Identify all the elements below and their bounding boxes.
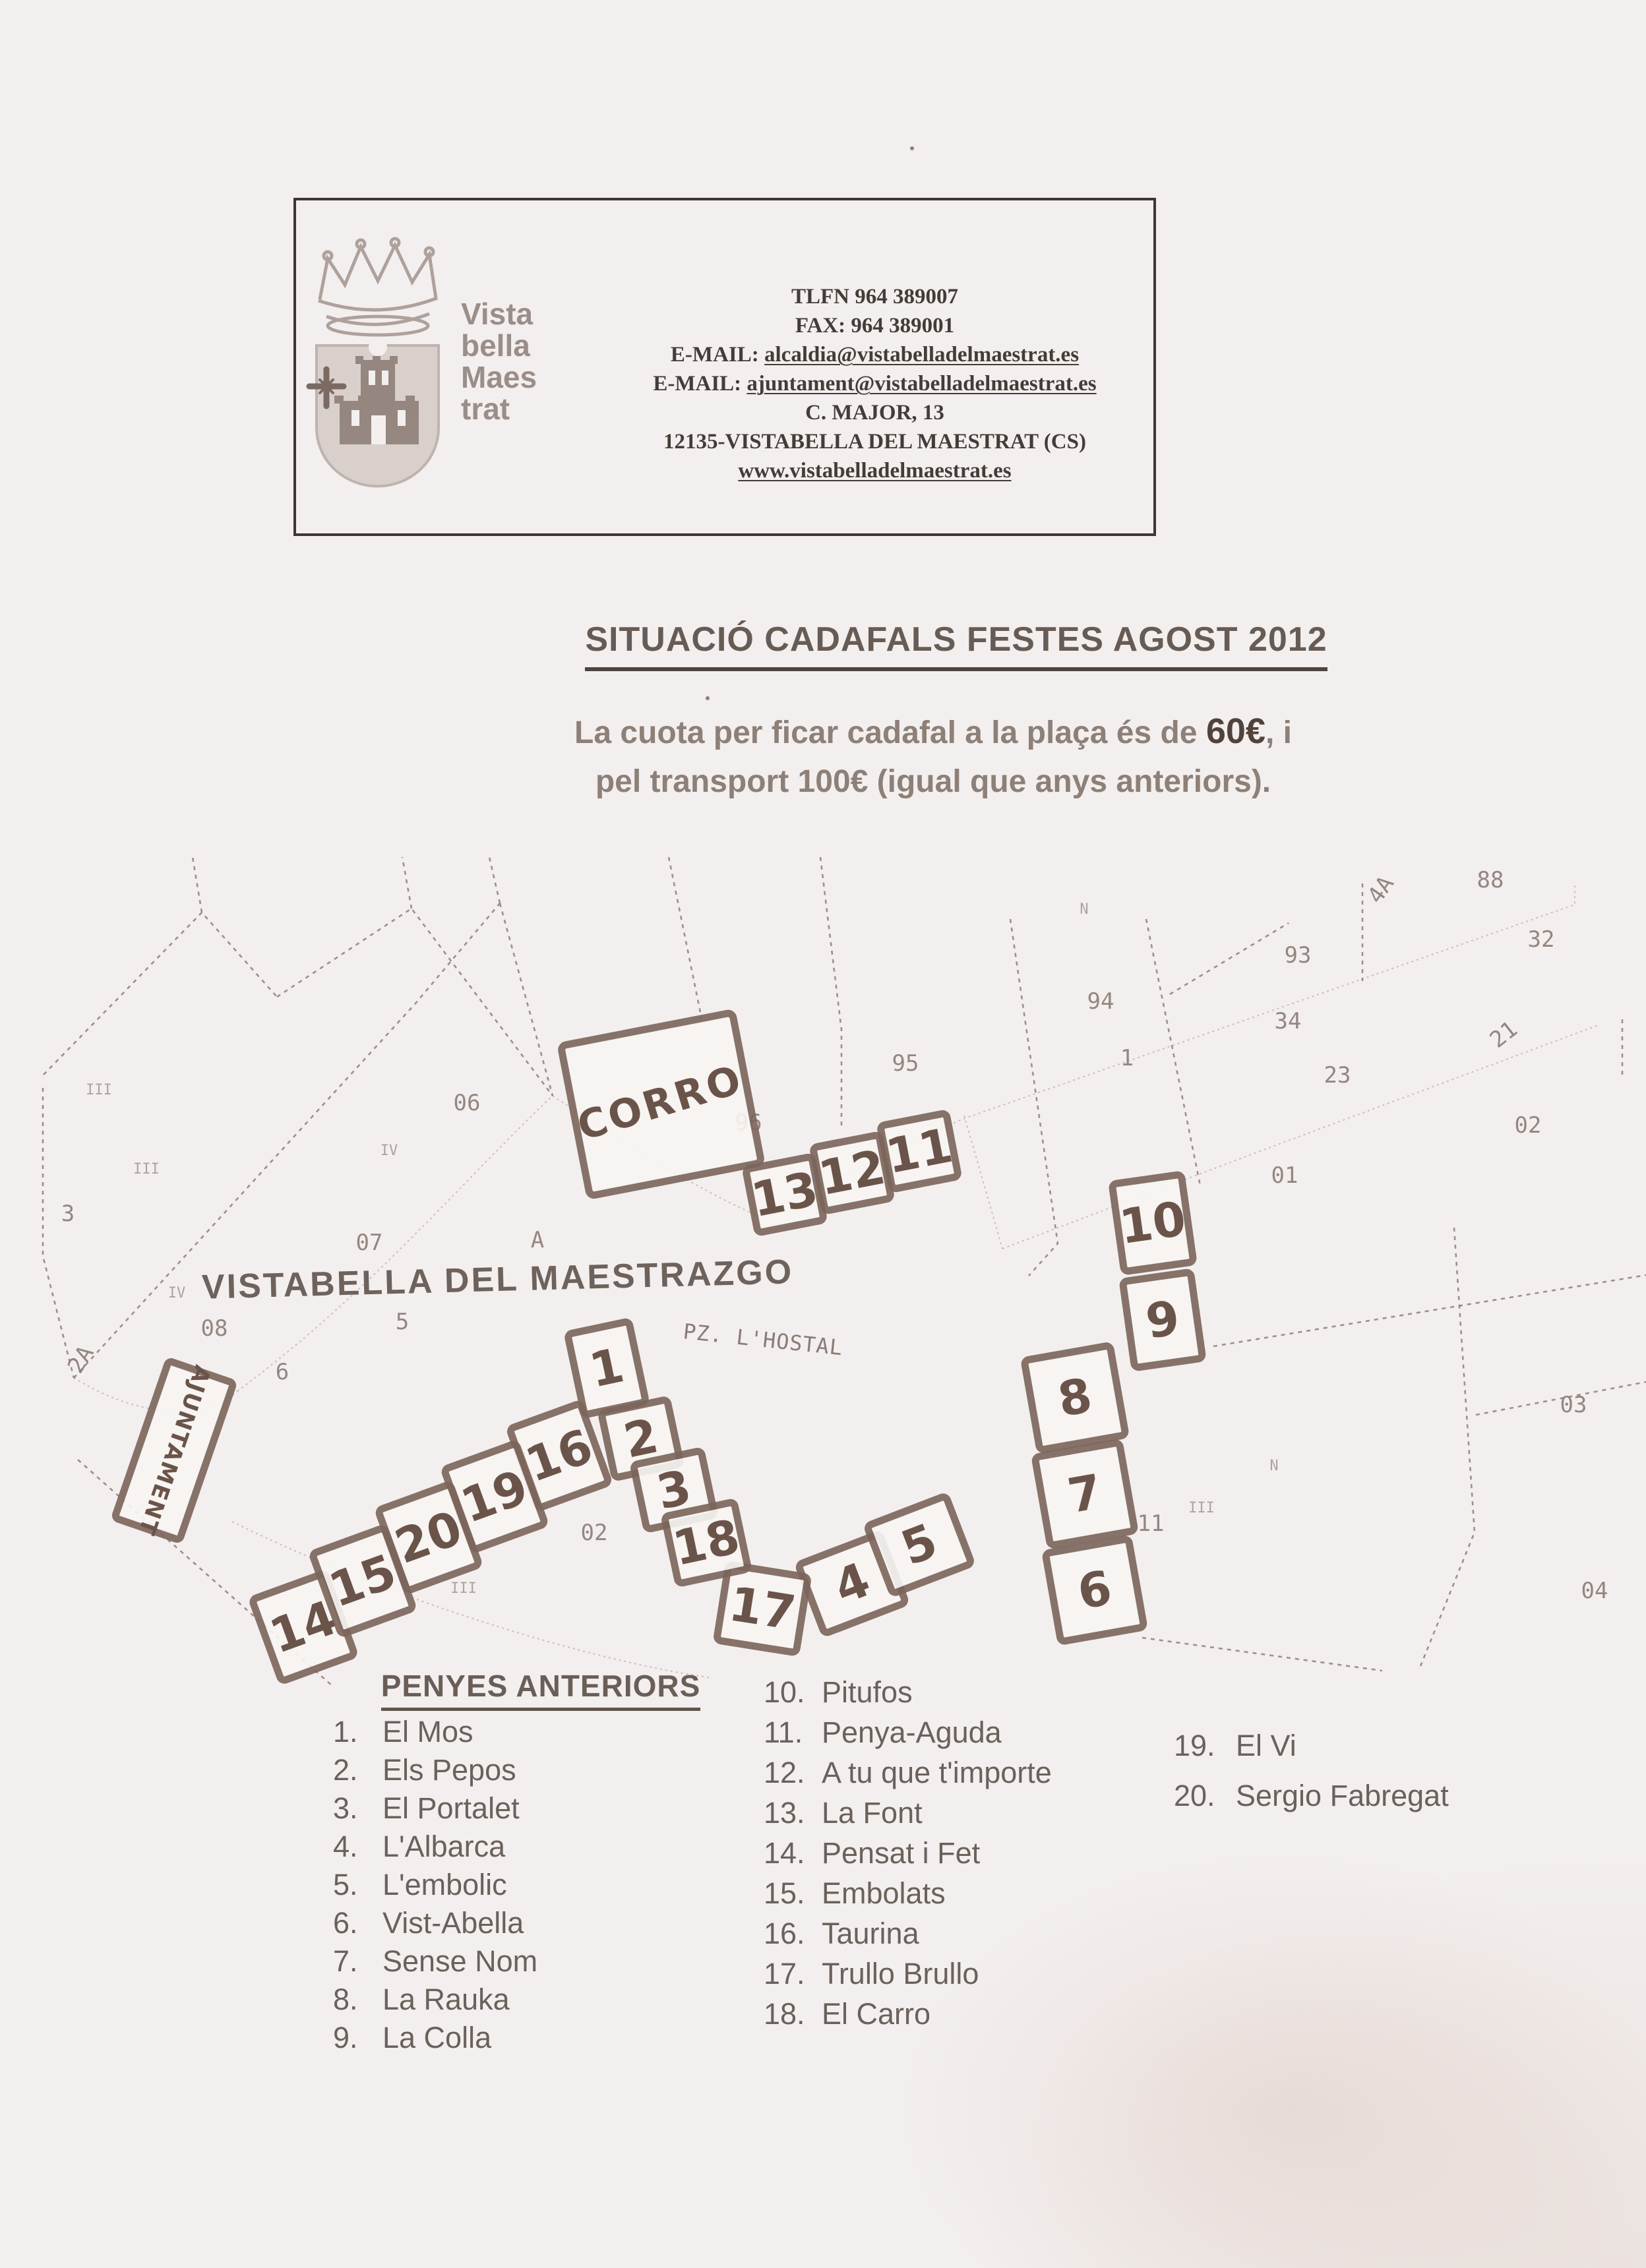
list-item-name: Embolats (822, 1876, 946, 1910)
cadastral-map-svg: 0696959493341232132884A0201030411070856A… (0, 850, 1646, 1686)
letterhead-box: Vista bella Maes trat TLFN 964 389007 FA… (293, 198, 1156, 536)
list-item: 7.Sense Nom (333, 1942, 537, 1981)
brand-line: bella (461, 330, 537, 361)
stand-number: 10 (1116, 1191, 1189, 1255)
list-item-name: Sense Nom (382, 1944, 537, 1978)
stand-box-6: 6 (1045, 1539, 1144, 1642)
list-item-number: 6. (333, 1904, 382, 1942)
penyes-header-text: PENYES ANTERIORS (381, 1668, 701, 1711)
stand-box-7: 7 (1035, 1443, 1135, 1546)
address-line: C. MAJOR, 13 (613, 398, 1137, 427)
email-label: E-MAIL: (653, 372, 741, 396)
parcel-label: 06 (454, 1090, 481, 1116)
list-item: 11.Penya-Aguda (764, 1712, 1052, 1752)
fee-amount: 60€ (1206, 711, 1265, 751)
list-item-number: 17. (764, 1954, 822, 1994)
list-item-number: 14. (764, 1833, 822, 1873)
list-item: 8.La Rauka (333, 1981, 537, 2019)
document-title-text: SITUACIÓ CADAFALS FESTES AGOST 2012 (585, 620, 1327, 671)
parcel-label: 02 (1515, 1112, 1542, 1139)
parcel-label: 88 (1477, 867, 1504, 893)
parcel-label: 94 (1087, 988, 1114, 1015)
list-item-number: 7. (333, 1942, 382, 1981)
list-item-number: 15. (764, 1873, 822, 1913)
stand-box-11: 11 (880, 1113, 959, 1189)
parcel-label: 5 (396, 1309, 409, 1335)
penyes-col-2: 10.Pitufos11.Penya-Aguda12.A tu que t'im… (764, 1672, 1052, 2034)
website-line: www.vistabelladelmaestrat.es (613, 456, 1137, 485)
fax-line: FAX: 964 389001 (613, 311, 1137, 340)
list-item-name: Taurina (822, 1917, 919, 1950)
email-address: ajuntament@vistabelladelmaestrat.es (747, 372, 1096, 396)
list-item: 18.El Carro (764, 1994, 1052, 2034)
list-item-number: 9. (333, 2019, 382, 2057)
parcel-label: 1 (1120, 1045, 1134, 1071)
parcel-label: 3 (61, 1201, 75, 1227)
map-mark: IV (381, 1143, 398, 1159)
list-item: 13.La Font (764, 1793, 1052, 1833)
list-item-number: 3. (333, 1789, 382, 1828)
list-item-name: El Carro (822, 1997, 930, 2031)
parcel-label: 4A (1362, 871, 1399, 908)
town-name-label: VISTABELLA DEL MAESTRAZGO (201, 1253, 794, 1306)
brand-line: Vista (461, 298, 537, 330)
penyes-col-3: 19.El Vi20.Sergio Fabregat (1174, 1721, 1449, 1821)
list-item: 6.Vist-Abella (333, 1904, 537, 1942)
map-mark: N (1269, 1458, 1278, 1474)
list-item-number: 4. (333, 1828, 382, 1866)
brand-line: Maes (461, 361, 537, 393)
stand-box-13: 13 (746, 1156, 824, 1233)
parcel-label: 02 (581, 1520, 608, 1546)
intro-line-1: La cuota per ficar cadafal a la plaça és… (422, 707, 1444, 758)
list-item-name: El Mos (382, 1715, 473, 1748)
list-item-name: Penya-Aguda (822, 1716, 1002, 1749)
parcel-label: 23 (1324, 1062, 1351, 1089)
list-item: 12.A tu que t'importe (764, 1752, 1052, 1793)
map-mark: III (133, 1161, 160, 1178)
penyes-col-1: 1.El Mos2.Els Pepos3.El Portalet4.L'Alba… (333, 1713, 537, 2057)
document-page: Vista bella Maes trat TLFN 964 389007 FA… (0, 0, 1646, 2268)
list-item-number: 18. (764, 1994, 822, 2034)
parcel-label: 08 (201, 1315, 228, 1342)
map-mark: IV (168, 1285, 186, 1301)
stand-box-10: 10 (1112, 1174, 1194, 1271)
list-item-name: El Vi (1236, 1729, 1296, 1762)
ajuntament-box: AJUNTAMENT (113, 1355, 235, 1546)
list-item-number: 8. (333, 1981, 382, 2019)
stand-box-1: 1 (568, 1321, 646, 1415)
town-map: 0696959493341232132884A0201030411070856A… (0, 850, 1646, 1686)
list-item-name: L'embolic (382, 1868, 507, 1901)
intro-text: La cuota per ficar cadafal a la plaça és… (574, 715, 1206, 750)
list-item-number: 19. (1174, 1721, 1236, 1771)
parcel-label: 6 (276, 1359, 289, 1385)
corro-box: CORRO (561, 1013, 762, 1196)
parcel-label: 34 (1275, 1008, 1302, 1034)
crown-icon (319, 239, 437, 335)
map-mark: N (1080, 901, 1088, 918)
scan-speck (910, 146, 914, 150)
list-item: 2.Els Pepos (333, 1751, 537, 1789)
list-item: 10.Pitufos (764, 1672, 1052, 1712)
list-item-name: Trullo Brullo (822, 1957, 979, 1990)
list-item: 1.El Mos (333, 1713, 537, 1751)
list-item-number: 11. (764, 1712, 822, 1752)
parcel-label: 11 (1138, 1510, 1165, 1537)
shield-icon (309, 338, 439, 486)
document-title: SITUACIÓ CADAFALS FESTES AGOST 2012 (514, 620, 1398, 671)
list-item: 17.Trullo Brullo (764, 1954, 1052, 1994)
parcel-label: 07 (356, 1230, 383, 1256)
list-item-name: La Rauka (382, 1983, 510, 2016)
intro-text: , i (1265, 715, 1292, 750)
parcel-label: 2A (63, 1341, 100, 1378)
square-name-label: PZ. L'HOSTAL (682, 1319, 844, 1360)
stand-box-17: 17 (717, 1565, 808, 1653)
list-item-name: La Colla (382, 2021, 491, 2054)
list-item: 5.L'embolic (333, 1866, 537, 1904)
stand-box-18: 18 (664, 1502, 748, 1584)
list-item: 3.El Portalet (333, 1789, 537, 1828)
contact-block: TLFN 964 389007 FAX: 964 389001 E-MAIL: … (613, 282, 1137, 485)
list-item: 19.El Vi (1174, 1721, 1449, 1771)
brand-wordmark: Vista bella Maes trat (461, 298, 537, 425)
list-item-number: 20. (1174, 1771, 1236, 1821)
map-mark: III (450, 1580, 477, 1597)
scan-speck (706, 696, 710, 700)
stand-number: 17 (725, 1576, 799, 1641)
list-item: 15.Embolats (764, 1873, 1052, 1913)
list-item-name: L'Albarca (382, 1830, 505, 1863)
email-label: E-MAIL: (671, 343, 759, 367)
stand-box-12: 12 (813, 1135, 892, 1211)
list-item: 4.L'Albarca (333, 1828, 537, 1866)
list-item-name: Vist-Abella (382, 1906, 524, 1940)
map-mark: III (1188, 1500, 1215, 1516)
list-item: 20.Sergio Fabregat (1174, 1771, 1449, 1821)
parcel-label: 03 (1560, 1392, 1587, 1418)
intro-line-2: pel transport 100€ (igual que anys anter… (422, 758, 1444, 806)
map-mark: III (86, 1082, 112, 1098)
list-item: 9.La Colla (333, 2019, 537, 2057)
email-line-1: E-MAIL: alcaldia@vistabelladelmaestrat.e… (613, 340, 1137, 369)
penyes-header: PENYES ANTERIORS (369, 1668, 712, 1711)
parcel-label: 95 (892, 1050, 919, 1077)
list-item-name: Pitufos (822, 1675, 913, 1709)
parcel-label: 21 (1485, 1016, 1523, 1054)
phone-line: TLFN 964 389007 (613, 282, 1137, 311)
brand-line: trat (461, 393, 537, 425)
list-item-name: Sergio Fabregat (1236, 1779, 1449, 1812)
list-item-name: Els Pepos (382, 1753, 516, 1787)
city-line: 12135-VISTABELLA DEL MAESTRAT (CS) (613, 427, 1137, 456)
parcel-label: 04 (1581, 1578, 1608, 1604)
list-item-name: El Portalet (382, 1791, 520, 1825)
list-item-number: 10. (764, 1672, 822, 1712)
parcel-label: 01 (1271, 1162, 1298, 1189)
list-item-number: 5. (333, 1866, 382, 1904)
list-item: 16.Taurina (764, 1913, 1052, 1954)
stand-box-8: 8 (1024, 1346, 1126, 1450)
list-item-name: La Font (822, 1796, 923, 1830)
list-item-number: 1. (333, 1713, 382, 1751)
list-item-number: 16. (764, 1913, 822, 1954)
parcel-label: 93 (1285, 942, 1312, 969)
list-item-number: 13. (764, 1793, 822, 1833)
email-line-2: E-MAIL: ajuntament@vistabelladelmaestrat… (613, 369, 1137, 398)
list-item-name: Pensat i Fet (822, 1836, 980, 1870)
parcel-label: A (531, 1227, 544, 1253)
list-item-name: A tu que t'importe (822, 1756, 1052, 1789)
list-item-number: 2. (333, 1751, 382, 1789)
parcel-label: 32 (1528, 926, 1555, 953)
intro-paragraph: La cuota per ficar cadafal a la plaça és… (422, 707, 1444, 806)
stand-box-9: 9 (1122, 1272, 1202, 1367)
town-crest (300, 220, 465, 504)
list-item: 14.Pensat i Fet (764, 1833, 1052, 1873)
email-address: alcaldia@vistabelladelmaestrat.es (764, 343, 1079, 367)
list-item-number: 12. (764, 1752, 822, 1793)
